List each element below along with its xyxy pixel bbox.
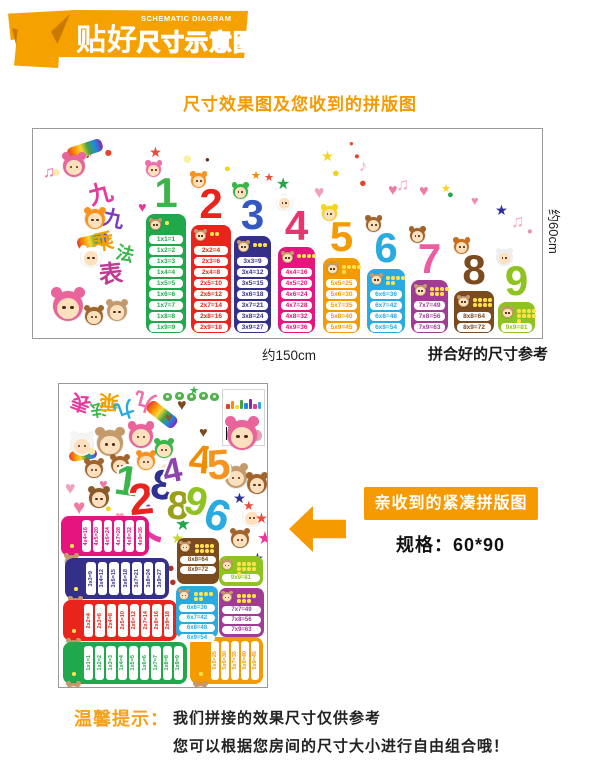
monkey-chara-icon	[243, 508, 261, 526]
chara-ear-icon	[98, 305, 104, 311]
chara-ear-icon	[115, 427, 124, 436]
yellow-dot-icon	[209, 592, 213, 596]
multiplication-strip: 2x8=16	[152, 604, 161, 637]
block-header	[180, 541, 216, 555]
yellow-dot-icon	[237, 594, 241, 598]
yellow-dot-icon	[242, 567, 246, 571]
packed-strip-block-4: 4x4=164x5=204x6=244x7=284x8=324x9=36	[61, 516, 149, 556]
strip-text: 2x4=8	[108, 613, 114, 628]
yellow-dot-icon	[204, 592, 208, 596]
multiplication-cell: 4x7=28	[281, 301, 312, 310]
multiplication-cell: 7x8=56	[222, 616, 261, 624]
yellow-dot-icon	[72, 629, 76, 633]
multiplication-cell: 6x9=54	[370, 323, 402, 332]
green-bubble-icon	[163, 393, 172, 401]
sheet-decor-icon: ●	[155, 536, 161, 546]
multiplication-strip: 1x7=7	[151, 646, 160, 680]
multiplication-cell: 3x8=24	[237, 312, 268, 321]
chara-ear-icon	[78, 152, 86, 160]
multiplication-cell: 4x4=16	[281, 268, 312, 277]
chara-ear-icon	[321, 204, 326, 209]
chara-face-icon	[245, 512, 258, 525]
yellow-dot-icon	[200, 549, 204, 553]
chara-face-icon	[57, 298, 79, 319]
monkey-chara-icon	[81, 247, 101, 267]
monkey-chara-icon	[497, 250, 512, 265]
column-block-3: 3x3=93x4=123x5=153x6=183x7=213x8=243x9=2…	[234, 236, 271, 333]
table-column-8: 8x8=648x9=728	[454, 129, 494, 333]
yellow-dot-icon	[237, 599, 241, 603]
sheet-decor-icon: ♥	[177, 398, 187, 414]
column-header	[327, 262, 356, 278]
numeral-9: 9	[505, 262, 528, 300]
monkey-chara-icon	[410, 228, 425, 243]
multiplication-cell: 4x8=32	[281, 312, 312, 321]
strip-text: 4x4=16	[83, 527, 89, 546]
sheet-numeral-2: 2	[127, 479, 155, 521]
yellow-dot-icon	[342, 270, 346, 274]
multiplication-cell: 6x6=36	[179, 604, 215, 612]
chara-ear-icon	[136, 450, 142, 456]
multiplication-strip: 5x7=35	[231, 641, 239, 680]
yellow-dot-icon	[347, 265, 351, 269]
chara-ear-icon	[84, 458, 90, 464]
monkey-chara-icon	[146, 162, 161, 177]
sheet-decor-icon: ●	[105, 504, 112, 515]
strip-text: 4x6=24	[105, 527, 111, 546]
mini-bar	[244, 403, 248, 409]
multiplication-cell: 2x2=4	[194, 246, 228, 255]
poster-canvas: ★●♫♪●★●●●★★★♥★●●●♪●♥♥♫♥★●♥★♫●九九乘法表1x1=11…	[32, 128, 543, 339]
chara-face-icon	[223, 562, 230, 569]
multiplication-strip: 2x4=8	[107, 604, 116, 637]
chara-face-icon	[459, 298, 467, 306]
packed-row-block-6: 6x6=366x7=426x8=486x9=54	[176, 586, 218, 638]
chara-ear-icon	[106, 299, 113, 306]
multiplication-cell: 1x2=2	[149, 246, 183, 255]
chara-ear-icon	[420, 226, 425, 231]
yellow-dot-icon	[532, 309, 536, 313]
chara-face-icon	[110, 305, 125, 319]
strip-text: 3x8=24	[146, 569, 152, 588]
column-header	[195, 229, 227, 245]
monkey-chara-icon	[322, 206, 337, 221]
yellow-dot-icon	[445, 287, 449, 291]
multiplication-cell: 4x6=24	[281, 290, 312, 299]
yellow-dot-icon	[74, 587, 78, 591]
column-header	[458, 295, 490, 311]
monkey-chara-icon	[129, 424, 153, 448]
multiplication-strip: 3x8=24	[144, 562, 154, 595]
monkey-chara-icon	[371, 274, 382, 285]
logo-text-main: 贴好	[76, 15, 138, 59]
yellow-dot-icon	[473, 303, 477, 307]
multiplication-cell: 4x9=36	[281, 323, 312, 332]
monkey-chara-icon	[195, 230, 206, 241]
monkey-chara-icon	[159, 460, 175, 476]
decor-icon: ♪	[359, 159, 367, 175]
numeral-wrap: 9	[498, 262, 535, 300]
table-column-2: 2x2=42x3=62x4=82x5=102x6=122x7=142x8=162…	[191, 129, 231, 333]
multiplication-cell: 6x8=48	[179, 624, 215, 632]
chara-ear-icon	[243, 182, 248, 187]
multiplication-strip: 4x9=36	[136, 520, 145, 552]
chara-ear-icon	[110, 454, 116, 460]
table-column-4: 4x4=164x5=204x6=244x7=284x8=324x9=364	[278, 129, 315, 333]
table-column-3: 3x3=93x4=123x5=153x6=183x7=213x8=243x9=2…	[234, 129, 271, 333]
monkey-chara-icon	[194, 683, 207, 688]
sheet-decor-icon: ♥	[123, 478, 131, 491]
mini-bar	[258, 402, 262, 409]
multiplication-cell: 3x9=27	[237, 323, 268, 332]
chara-ear-icon	[84, 207, 91, 214]
count-dots	[430, 287, 452, 296]
chara-face-icon	[84, 251, 99, 265]
multiplication-strip: 1x4=4	[118, 646, 127, 680]
chara-ear-icon	[158, 458, 164, 464]
yellow-dot-icon	[435, 287, 439, 291]
count-dots	[386, 276, 408, 285]
multiplication-cell: 2x9=18	[194, 323, 228, 332]
green-bubble-icon	[199, 392, 208, 400]
strips: 3x3=93x4=123x5=153x6=183x7=213x8=243x9=2…	[86, 562, 165, 595]
decor-icon: ♫	[43, 165, 55, 181]
multiplication-strip: 1x6=6	[140, 646, 149, 680]
decor-icon: ●	[51, 165, 61, 181]
multiplication-strip: 3x7=21	[132, 562, 142, 595]
yellow-dot-icon	[215, 232, 219, 236]
monkey-chara-icon	[191, 173, 206, 188]
sheet-numeral-8: 8	[165, 487, 190, 525]
chara-ear-icon	[193, 681, 198, 686]
column-block-4: 4x4=164x5=204x6=244x7=284x8=324x9=36	[278, 247, 315, 333]
count-dots	[195, 544, 217, 553]
yellow-dot-icon	[352, 265, 356, 269]
monkey-chara-icon	[238, 241, 249, 252]
multiplication-cell: 1x6=6	[149, 290, 183, 299]
chara-ear-icon	[170, 458, 176, 464]
strip-text: 2x5=10	[120, 611, 126, 630]
chara-ear-icon	[246, 472, 253, 479]
chara-face-icon	[88, 213, 103, 227]
chara-ear-icon	[224, 463, 232, 471]
chara-face-icon	[499, 253, 510, 264]
strip-text: 1x7=7	[153, 655, 159, 670]
logo-text-cn: 尺寸示意图	[137, 23, 257, 57]
chara-ear-icon	[103, 486, 110, 493]
chara-ear-icon	[496, 248, 501, 253]
strip-text: 1x2=2	[97, 655, 103, 670]
yellow-dot-icon	[194, 592, 198, 596]
mini-bar	[240, 400, 244, 409]
multiplication-strip: 1x3=3	[106, 646, 115, 680]
title-char: 九	[86, 180, 115, 209]
chara-face-icon	[132, 429, 150, 446]
yellow-dot-icon	[522, 309, 526, 313]
multiplication-strip: 2x6=12	[130, 604, 139, 637]
column-block-7: 7x7=497x8=567x9=63	[411, 280, 448, 333]
strips: 4x4=164x5=204x6=244x7=284x8=324x9=36	[82, 520, 145, 552]
monkey-chara-icon	[225, 466, 247, 488]
strip-text: 2x9=18	[165, 611, 171, 630]
chara-face-icon	[180, 592, 187, 599]
yellow-dot-icon	[200, 544, 204, 548]
yellow-dot-icon	[478, 298, 482, 302]
chara-face-icon	[92, 492, 107, 506]
chara-ear-icon	[95, 245, 102, 252]
yellow-dot-icon	[386, 276, 390, 280]
strip-text: 3x5=15	[111, 569, 117, 588]
block-header	[179, 589, 215, 603]
chara-ear-icon	[261, 472, 268, 479]
column-header	[371, 273, 401, 289]
multiplication-strip: 1x1=1	[84, 646, 93, 680]
monkey-chara-icon	[179, 590, 189, 600]
column-header	[282, 251, 311, 267]
monkey-chara-icon	[277, 195, 292, 210]
count-dots	[194, 592, 216, 601]
chara-ear-icon	[225, 416, 236, 427]
packed-strip-block-1: 1x1=11x2=21x3=31x4=41x5=51x6=61x7=71x8=8…	[63, 642, 187, 684]
yellow-dot-icon	[483, 303, 487, 307]
monkey-chara-icon	[222, 560, 232, 570]
chara-face-icon	[196, 686, 206, 688]
count-dots	[237, 562, 259, 576]
monkey-chara-icon	[327, 263, 338, 274]
yellow-dot-icon	[210, 232, 214, 236]
multiplication-strip: 2x5=10	[118, 604, 127, 637]
chara-ear-icon	[62, 152, 70, 160]
logo-text-en: SCHEMATIC DIAGRAM	[141, 14, 231, 23]
multiplication-strip: 1x9=9	[174, 646, 183, 680]
chara-ear-icon	[51, 287, 62, 298]
numeral-1: 1	[154, 174, 177, 212]
multiplication-cell: 1x9=9	[149, 323, 183, 332]
multiplication-strip: 1x8=8	[163, 646, 172, 680]
chara-face-icon	[328, 265, 336, 273]
multiplication-cell: 1x8=8	[149, 312, 183, 321]
yellow-dot-icon	[253, 243, 257, 247]
green-bubble-icon	[210, 393, 219, 401]
numeral-wrap: 7	[411, 240, 448, 278]
assembled-size-caption: 拼合好的尺寸参考	[428, 343, 548, 364]
chara-face-icon	[231, 427, 253, 448]
chara-face-icon	[412, 231, 423, 242]
numeral-wrap: 3	[234, 196, 271, 234]
yellow-dot-icon	[205, 549, 209, 553]
mini-bar	[249, 399, 253, 409]
chara-ear-icon	[128, 421, 137, 430]
multiplication-cell: 7x8=56	[414, 312, 445, 321]
multiplication-cell: 5x8=40	[326, 312, 357, 321]
decor-icon: ●	[447, 190, 454, 201]
chara-ear-icon	[64, 553, 69, 558]
multiplication-strip: 3x6=18	[121, 562, 131, 595]
yellow-dot-icon	[165, 221, 169, 225]
yellow-dot-icon	[237, 562, 241, 566]
size-height-label: 约60cm	[545, 209, 564, 254]
chara-face-icon	[235, 187, 246, 198]
chara-ear-icon	[84, 305, 90, 311]
yellow-dot-icon	[312, 254, 316, 258]
page: 贴好 SCHEMATIC DIAGRAM 尺寸示意图 尺寸效果图及您收到的拼版图…	[0, 0, 600, 781]
numeral-5: 5	[330, 218, 353, 256]
strip-text: 4x5=20	[94, 527, 100, 546]
multiplication-cell: 4x5=20	[281, 279, 312, 288]
table-column-1: 1x1=11x2=21x3=31x4=41x5=51x6=61x7=71x8=8…	[146, 129, 186, 333]
strip-text: 1x3=3	[108, 655, 114, 670]
yellow-dot-icon	[342, 265, 346, 269]
strip-text: 2x6=12	[131, 611, 137, 630]
yellow-dot-icon	[237, 567, 241, 571]
chara-ear-icon	[248, 416, 259, 427]
strip-text: 5x9=45	[252, 651, 258, 670]
yellow-dot-icon	[242, 562, 246, 566]
sheet-numeral-4: 4	[187, 441, 213, 479]
multiplication-cell: 2x6=12	[194, 290, 228, 299]
multiplication-strip: 3x9=27	[155, 562, 165, 595]
count-dots	[253, 243, 275, 247]
column-header	[415, 284, 444, 300]
chara-ear-icon	[240, 463, 248, 471]
sheet-decor-icon: ♥	[65, 480, 75, 498]
strip-text: 4x7=28	[116, 527, 122, 546]
multiplication-cell: 8x9=72	[457, 323, 491, 332]
yellow-dot-icon	[247, 599, 251, 603]
multiplication-cell: 5x7=35	[326, 301, 357, 310]
yellow-dot-icon	[435, 292, 439, 296]
column-header	[502, 306, 531, 322]
numeral-8: 8	[462, 251, 485, 289]
chara-ear-icon	[98, 458, 104, 464]
monkey-chara-icon	[458, 296, 469, 307]
yellow-dot-icon	[242, 599, 246, 603]
multiplication-strip: 4x7=28	[114, 520, 123, 552]
yellow-dot-icon	[483, 298, 487, 302]
monkey-chara-icon	[85, 209, 105, 229]
chara-face-icon	[139, 456, 152, 469]
monkey-chara-icon	[85, 460, 103, 478]
chara-face-icon	[228, 471, 244, 487]
column-header	[238, 240, 267, 256]
multiplication-cell: 1x4=4	[149, 268, 183, 277]
multiplication-cell: 3x7=21	[237, 301, 268, 310]
strip-text: 2x3=6	[97, 613, 103, 628]
multiplication-cell: 6x7=42	[370, 301, 402, 310]
strip-text: 2x7=14	[143, 611, 149, 630]
yellow-dot-icon	[488, 303, 492, 307]
numeral-7: 7	[418, 240, 441, 278]
multiplication-cell: 1x3=3	[149, 257, 183, 266]
chara-ear-icon	[332, 204, 337, 209]
yellow-dot-icon	[430, 292, 434, 296]
decor-icon: ●	[359, 177, 367, 190]
chara-face-icon	[503, 309, 511, 317]
yellow-dot-icon	[194, 597, 198, 601]
strip-text: 1x1=1	[86, 655, 92, 670]
chara-ear-icon	[88, 486, 95, 493]
chara-ear-icon	[256, 506, 262, 512]
yellow-dot-icon	[430, 287, 434, 291]
count-dots	[517, 309, 539, 323]
multiplication-strip: 1x2=2	[95, 646, 104, 680]
multiplication-strip: 2x9=18	[164, 604, 173, 637]
monkey-chara-icon	[137, 452, 155, 470]
multiplication-cell: 7x7=49	[222, 606, 261, 614]
chara-ear-icon	[95, 427, 104, 436]
chara-ear-icon	[377, 215, 382, 220]
block-header	[222, 591, 261, 605]
multiplication-strip: 3x3=9	[86, 562, 96, 595]
chara-face-icon	[151, 221, 159, 229]
chara-face-icon	[324, 209, 335, 220]
multiplication-strip: 5x5=25	[211, 641, 219, 680]
multiplication-cell: 1x7=7	[149, 301, 183, 310]
multiplication-cell: 3x5=15	[237, 279, 268, 288]
strips: 2x2=42x3=62x4=82x5=102x6=122x7=142x8=162…	[84, 604, 173, 637]
monkey-chara-icon	[53, 291, 83, 321]
count-dots	[237, 594, 259, 603]
yellow-dot-icon	[195, 544, 199, 548]
multiplication-cell: 7x9=63	[414, 323, 445, 332]
strip-text: 1x5=5	[130, 655, 136, 670]
spec-label: 规格：60*90	[396, 531, 505, 557]
chara-face-icon	[223, 594, 230, 601]
table-column-5: 5x5=255x6=305x7=355x8=405x9=455	[323, 129, 360, 333]
numeral-wrap: 5	[323, 218, 360, 256]
strip-text: 4x9=36	[138, 527, 144, 546]
count-dots	[473, 298, 495, 307]
yellow-dot-icon	[396, 276, 400, 280]
page-subtitle: 尺寸效果图及您收到的拼版图	[0, 90, 600, 115]
yellow-dot-icon	[527, 309, 531, 313]
column-block-6: 6x6=366x7=426x8=486x9=54	[367, 269, 405, 333]
numeral-4: 4	[285, 207, 308, 245]
count-dots	[210, 232, 232, 236]
chara-face-icon	[113, 460, 126, 473]
yellow-dot-icon	[391, 276, 395, 280]
strips: 5x5=255x6=305x7=355x8=405x9=45	[211, 641, 259, 680]
chara-face-icon	[161, 464, 173, 475]
yellow-dot-icon	[532, 314, 536, 318]
chara-ear-icon	[124, 454, 130, 460]
multiplication-cell: 5x5=25	[326, 279, 357, 288]
chara-ear-icon	[230, 528, 236, 534]
column-block-8: 8x8=648x9=72	[454, 291, 494, 333]
green-bubble-icon	[175, 392, 184, 400]
chara-face-icon	[193, 176, 204, 187]
header-banner: 贴好 SCHEMATIC DIAGRAM 尺寸示意图	[0, 0, 260, 72]
yellow-dot-icon	[522, 314, 526, 318]
count-dots	[165, 221, 187, 225]
multiplication-cell: 3x6=18	[237, 290, 268, 299]
packed-row-block-8: 8x8=648x9=72	[177, 538, 219, 584]
yellow-dot-icon	[517, 319, 521, 323]
numeral-wrap: 4	[278, 207, 315, 245]
chara-ear-icon	[242, 506, 248, 512]
chara-ear-icon	[66, 681, 71, 686]
chara-face-icon	[74, 439, 90, 455]
chara-ear-icon	[276, 193, 281, 198]
yellow-dot-icon	[247, 567, 251, 571]
multiplication-strip: 4x4=16	[82, 520, 91, 552]
chara-ear-icon	[86, 431, 94, 439]
monkey-chara-icon	[97, 430, 123, 456]
chara-face-icon	[283, 254, 291, 262]
count-dots	[342, 265, 364, 274]
mini-chart	[226, 395, 261, 409]
multiplication-cell: 2x7=14	[194, 301, 228, 310]
